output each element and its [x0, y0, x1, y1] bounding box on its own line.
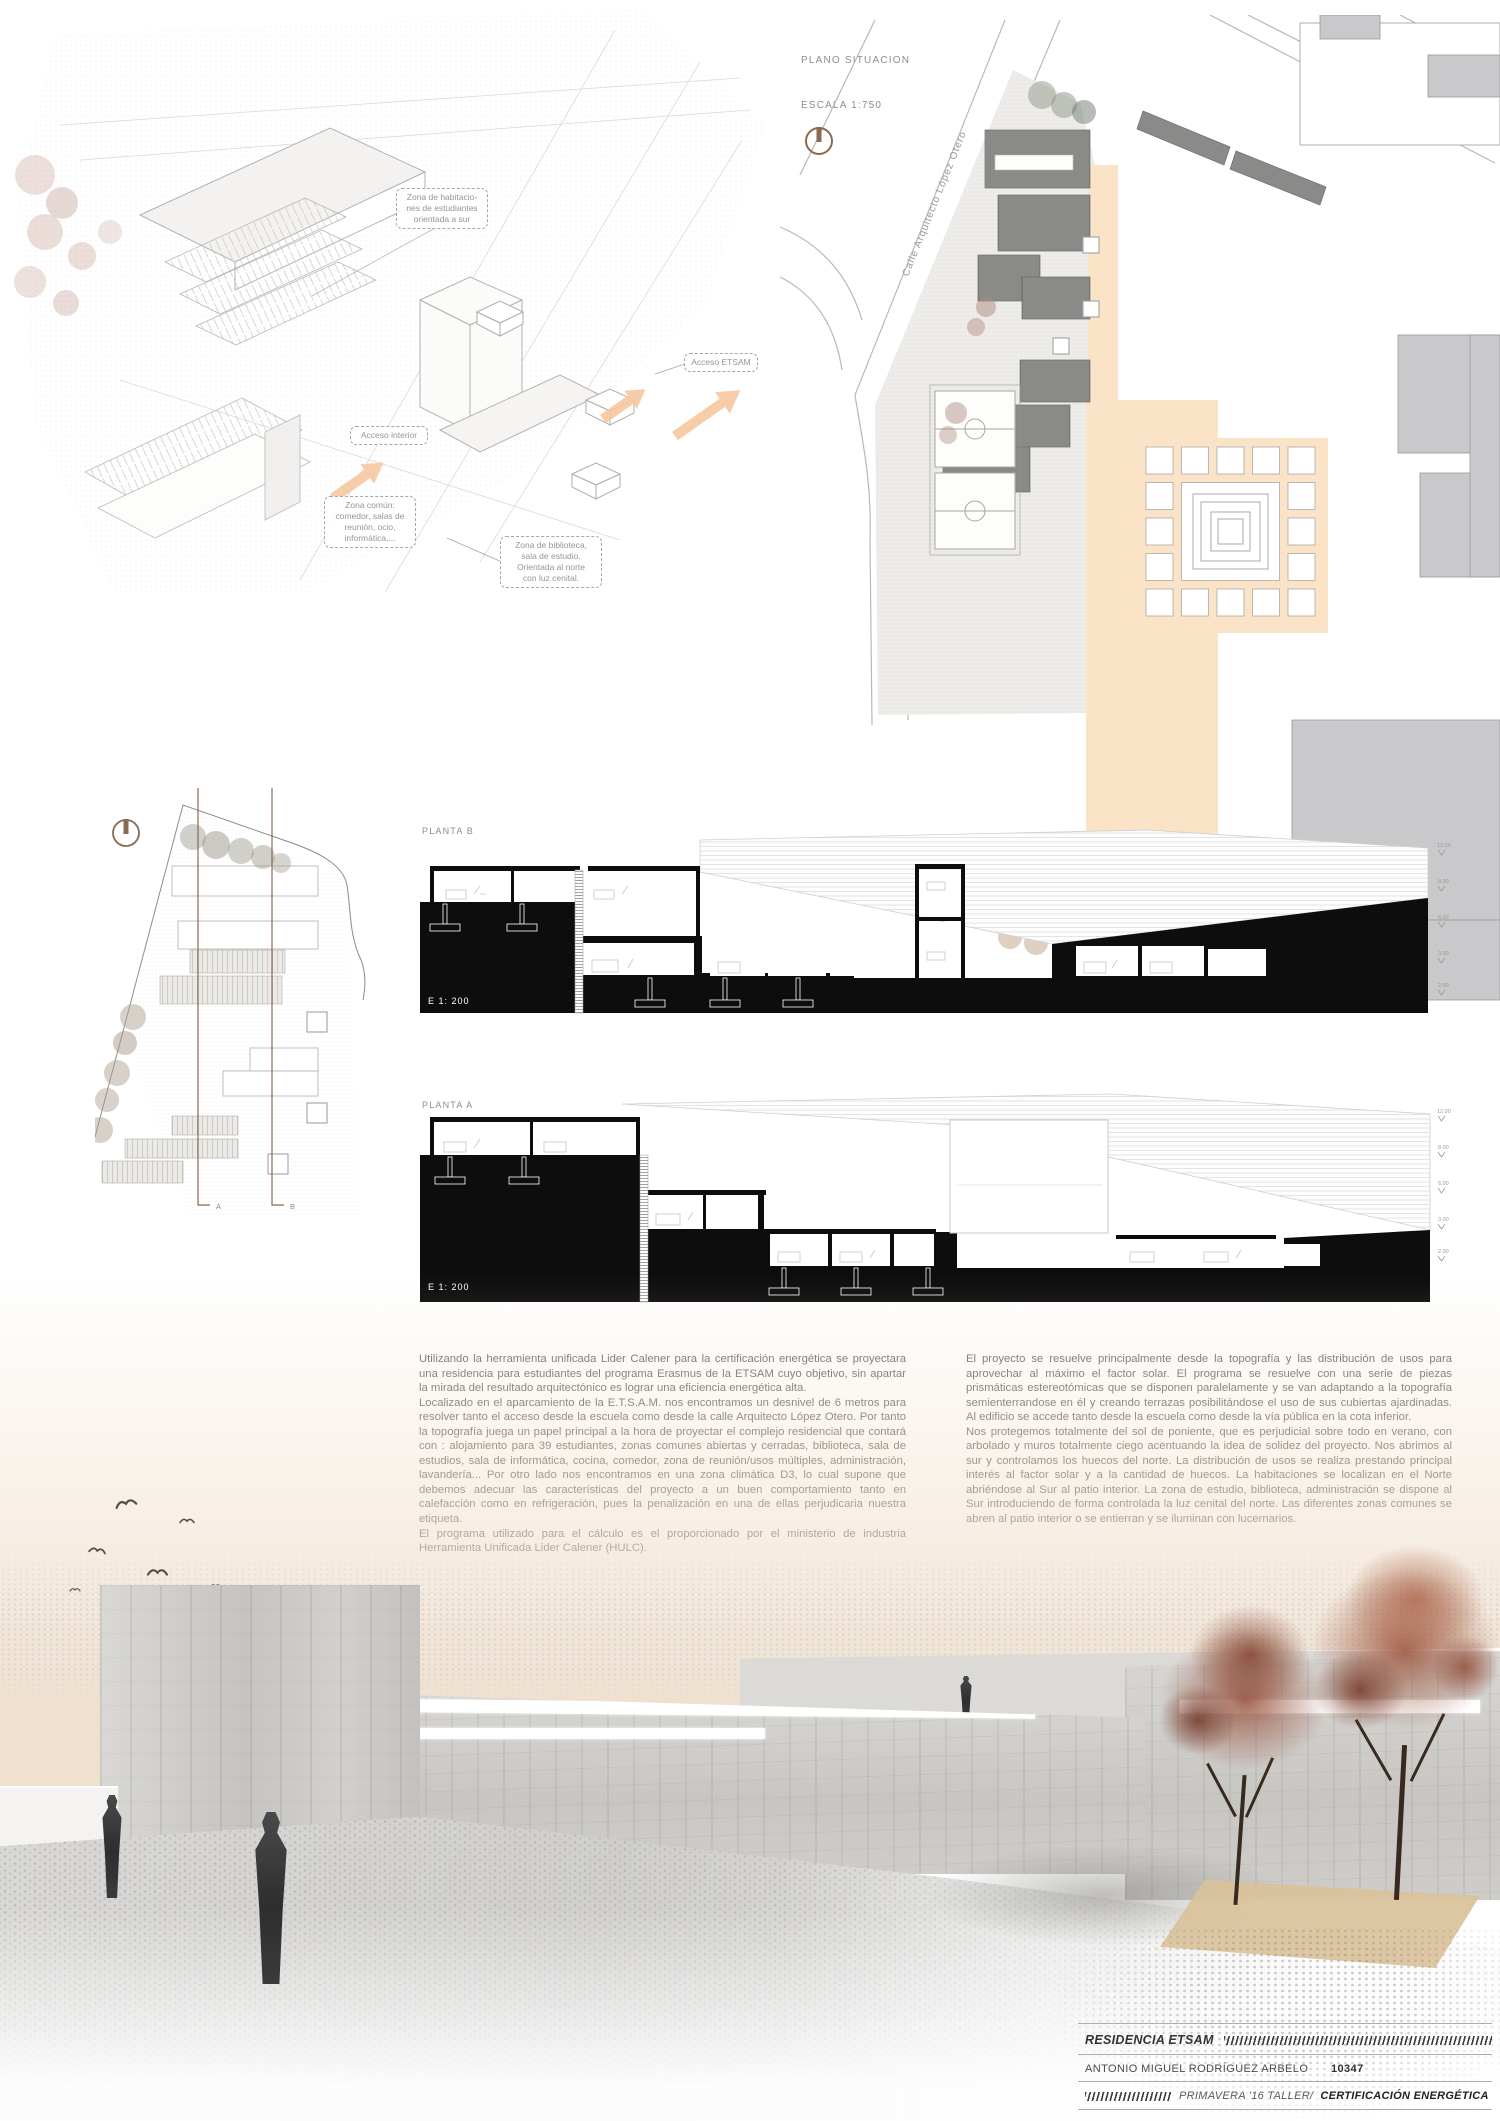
stair-core: [575, 870, 583, 1013]
divider: [1078, 2054, 1492, 2055]
svg-text:3.00: 3.00: [1438, 1217, 1449, 1223]
separator-ticks: [1224, 2036, 1492, 2045]
autumn-trees: [1120, 1545, 1500, 1925]
svg-text:12.00: 12.00: [1437, 1109, 1451, 1115]
course-label: CERTIFICACIÓN ENERGÉTICA: [1320, 2090, 1488, 2102]
project-title: RESIDENCIA ETSAM: [1085, 2033, 1214, 2047]
section-marker-a: A: [216, 1202, 221, 1211]
section-marker-b: B: [290, 1202, 295, 1211]
level-marks: [1438, 850, 1445, 995]
tree-canopy: [1420, 1625, 1500, 1710]
svg-text:2.00: 2.00: [1438, 1249, 1449, 1255]
section-b-drawing: E 1: 200 12.00 8.00 6.00 3.00 2.00: [412, 822, 1462, 1037]
term-label: PRIMAVERA '16 TALLER/: [1179, 2090, 1313, 2102]
keyplan-north-icon: [113, 819, 139, 846]
title-row: RESIDENCIA ETSAM: [1085, 2030, 1492, 2050]
annotation-zona-comun: Zona común: comedor, salas de reunión, o…: [324, 496, 416, 548]
svg-text:8.00: 8.00: [1438, 879, 1449, 885]
presentation-board: Zona de habitacio- nes de estudiantes or…: [0, 0, 1500, 2121]
divider: [1078, 2109, 1492, 2110]
roof-slab-gap: [995, 155, 1073, 170]
tree-trunk: [1233, 1775, 1246, 1905]
hall-volume: [950, 1120, 1108, 1233]
svg-text:8.00: 8.00: [1438, 1145, 1449, 1151]
tree-canopy: [1300, 1640, 1420, 1740]
svg-text:6.00: 6.00: [1438, 1181, 1449, 1187]
title-block: RESIDENCIA ETSAM ANTONIO MIGUEL RODRÍGUE…: [1078, 2018, 1492, 2118]
annotation-biblioteca: Zona de biblioteca, sala de estudio. Ori…: [500, 536, 602, 588]
section-b-scale: E 1: 200: [428, 996, 470, 1006]
author-row: ANTONIO MIGUEL RODRÍGUEZ ARBELO 10347: [1085, 2060, 1492, 2078]
divider: [1078, 2023, 1492, 2024]
tree-branch: [1206, 1763, 1237, 1817]
annotation-acceso-etsam: Acceso ETSAM: [684, 353, 758, 372]
level-labels: 12.00 8.00 6.00 3.00 2.00: [1437, 843, 1451, 989]
course-row: PRIMAVERA '16 TALLER/ CERTIFICACIÓN ENER…: [1085, 2087, 1492, 2105]
svg-text:12.00: 12.00: [1437, 843, 1451, 849]
annotation-habitaciones: Zona de habitacio- nes de estudiantes or…: [396, 188, 488, 229]
annotation-acceso-interior: Acceso interior: [350, 426, 428, 445]
author-name: ANTONIO MIGUEL RODRÍGUEZ ARBELO: [1085, 2063, 1308, 2075]
level-marks: [1438, 1116, 1445, 1261]
level-labels: 12.00 8.00 6.00 3.00 2.00: [1437, 1109, 1451, 1255]
svg-text:2.00: 2.00: [1438, 983, 1449, 989]
key-plan-drawing: A B: [95, 785, 395, 1280]
svg-text:3.00: 3.00: [1438, 951, 1449, 957]
north-arrow-icon: [806, 127, 832, 154]
concrete-cube-building: [100, 1585, 420, 1847]
panel-number: 10347: [1331, 2063, 1364, 2075]
separator-ticks: [1085, 2092, 1171, 2101]
divider: [1078, 2081, 1492, 2082]
svg-text:6.00: 6.00: [1438, 915, 1449, 921]
tree-trunk: [1394, 1745, 1407, 1900]
courtyard-grid: [1146, 447, 1315, 616]
tree-canopy: [1148, 1675, 1248, 1765]
